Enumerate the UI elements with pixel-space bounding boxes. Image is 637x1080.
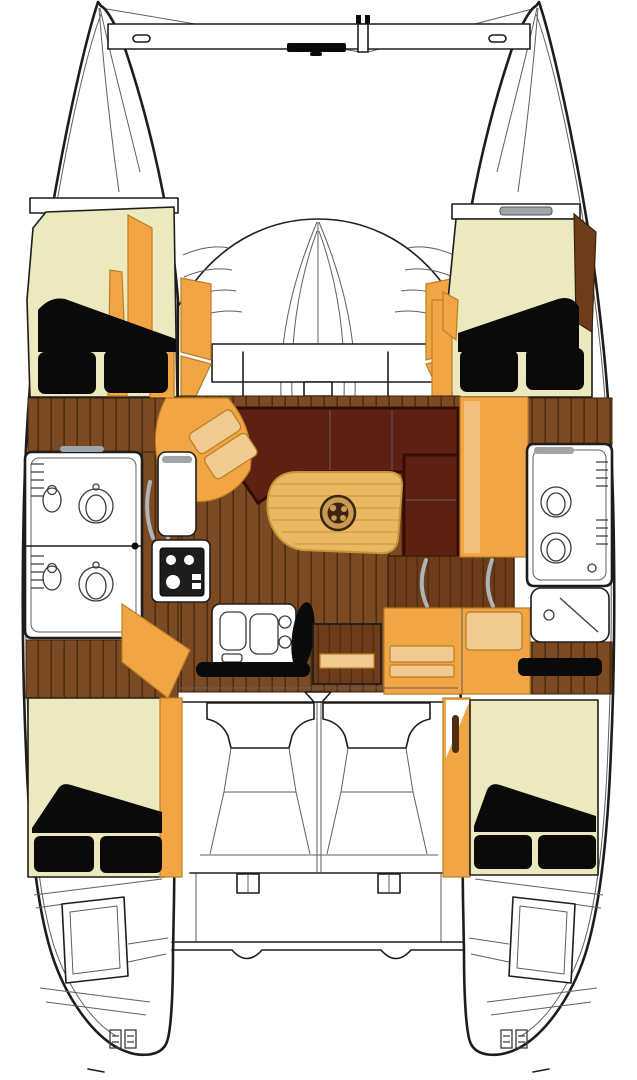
- starboard-head-hatch: [534, 447, 574, 454]
- starboard-forward-pillow-2: [526, 348, 584, 390]
- catamaran-floor-plan: [0, 0, 637, 1080]
- cockpit-center-notch: [305, 692, 331, 702]
- transom-door-port: [62, 897, 128, 983]
- galley-sink: [212, 604, 296, 668]
- companionway-steps: [388, 556, 514, 608]
- anchor-roller-fitting: [287, 43, 346, 56]
- aft-crossbeam: [172, 942, 464, 959]
- port-forward-pillow-1: [38, 352, 96, 394]
- cockpit: [172, 688, 464, 959]
- foredeck: [178, 219, 459, 397]
- port-deck-locker: [181, 278, 211, 396]
- forestay-bridle-fitting: [356, 15, 370, 52]
- starboard-aft-cabin: [443, 698, 598, 877]
- port-aft-pillow-1: [34, 836, 94, 872]
- starboard-head: [527, 444, 612, 642]
- drawer-1: [390, 646, 454, 662]
- salon-table-medallion: [321, 496, 355, 530]
- starboard-aft-pillow-2: [538, 835, 596, 869]
- port-aft-pillow-2: [100, 836, 162, 873]
- salon-settee-starboard: [404, 455, 458, 565]
- starboard-bench-back: [466, 612, 522, 650]
- starboard-aft-door-handle: [452, 715, 459, 753]
- starboard-shower: [531, 588, 609, 642]
- cockpit-seat-port: [207, 703, 314, 854]
- cockpit-seat-starboard: [323, 703, 430, 854]
- cockpit-sideboard: [313, 624, 381, 684]
- starboard-forward-hatch: [500, 207, 552, 215]
- drawer-2: [390, 665, 454, 677]
- starboard-forward-pillow-1: [460, 350, 518, 392]
- coachroof-front-band: [178, 344, 459, 396]
- port-head-rail: [60, 446, 104, 452]
- starboard-threshold: [518, 658, 602, 676]
- port-forward-wardrobe: [128, 215, 152, 340]
- port-forward-pillow-2: [104, 350, 168, 393]
- starboard-forward-cabin: [432, 204, 596, 397]
- bow-crossbeam: [108, 15, 530, 56]
- stove: [160, 548, 204, 596]
- galley-cabinet: [158, 452, 196, 536]
- cleat-port: [237, 874, 259, 893]
- port-aft-wardrobe: [160, 698, 182, 877]
- galley-cabinet-top: [162, 456, 192, 463]
- starboard-aft-pillow-1: [474, 835, 532, 869]
- galley-aft-fiddle: [196, 662, 310, 677]
- cleat-starboard: [378, 874, 400, 893]
